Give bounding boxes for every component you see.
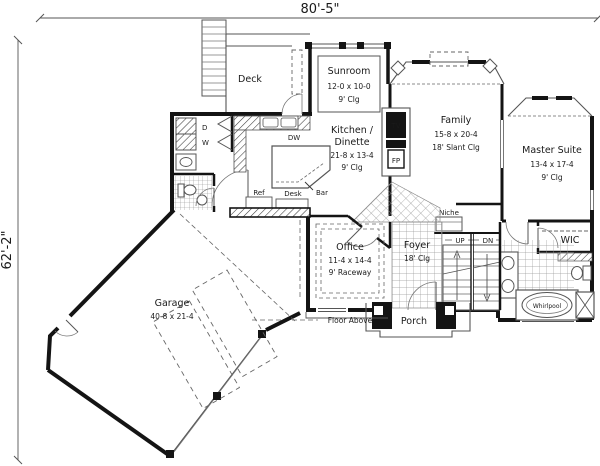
whirlpool-label: Whirlpool [533,303,562,310]
dn-label: DN [483,237,494,245]
master-label: Master Suite [522,145,582,156]
family-ceiling: 18' Slant Clg [432,143,480,152]
kitchen-label-1: Kitchen / [331,125,374,136]
office-size: 11-4 x 14-4 [328,256,371,265]
office-ceiling: 9' Raceway [329,268,372,277]
family-room: Family 15-8 x 20-4 18' Slant Clg TV FP [382,52,504,204]
tv-label: TV [390,122,400,130]
sink-icon [502,280,514,293]
garage-size: 40-8 x 21-4 [150,312,193,321]
tv-fp-unit: TV FP [382,108,410,176]
garage-label: Garage [155,298,190,309]
refrigerator [246,197,272,208]
half-bath [174,174,214,212]
niche-label: Niche [439,209,459,217]
dimension-left-label: 62'-2" [0,230,15,269]
master-suite: Master Suite 13-4 x 17-4 9' Clg [502,98,592,244]
foyer-ceiling: 18' Clg [404,254,430,263]
family-label: Family [441,115,472,126]
garage: Garage 40-8 x 21-4 [48,210,300,458]
bay-column-left [391,61,405,75]
kitchen-size: 21-8 x 13-4 [330,151,373,160]
fp-label: FP [392,157,400,165]
family-size: 15-8 x 20-4 [434,130,477,139]
sunroom-ceiling: 9' Clg [338,95,360,104]
up-label: UP [455,237,464,245]
desk [276,199,308,208]
washer-label: W [202,139,209,147]
master-size: 13-4 x 17-4 [530,160,573,169]
dimension-top-label: 80'-5" [300,2,339,17]
office-label: Office [336,242,364,253]
floor-plan-svg: 80'-5" 62'-2" Deck [0,0,600,466]
desk-label: Desk [284,190,302,198]
garage-doors [166,330,266,458]
ref-label: Ref [253,189,265,197]
foyer-label: Foyer [404,240,430,251]
kitchen-ceiling: 9' Clg [341,163,363,172]
whirlpool-tub: Whirlpool [516,290,578,320]
dimension-left: 62'-2" [0,36,22,464]
bifold-doors [218,116,232,150]
floor-above-label: Floor Above [328,316,373,325]
bar-label: Bar [316,189,328,197]
dryer-label: D [202,124,207,132]
sink-icon [502,257,514,270]
deck-area: Deck [202,20,310,114]
kitchen-sink-icon [260,116,298,129]
deck-door [282,94,302,114]
sunroom: Sunroom 12-0 x 10-0 9' Clg [305,42,391,112]
dimension-top: 80'-5" [36,2,600,22]
deck-label: Deck [238,74,262,85]
garage-service-door [66,320,78,332]
shower [576,292,594,318]
dishwasher-label: DW [288,134,300,142]
toilet-icon [572,266,592,280]
hall-stairs: Niche UP DN [434,209,500,310]
floor-plan-canvas: 80'-5" 62'-2" Deck [0,0,600,466]
kitchen-label-2: Dinette [334,137,369,148]
sunroom-size: 12-0 x 10-0 [327,82,370,91]
porch-label: Porch [401,316,427,327]
utility-sink-icon [180,158,192,167]
master-ceiling: 9' Clg [541,173,563,182]
parking-spaces [149,270,281,409]
sunroom-label: Sunroom [328,66,371,77]
